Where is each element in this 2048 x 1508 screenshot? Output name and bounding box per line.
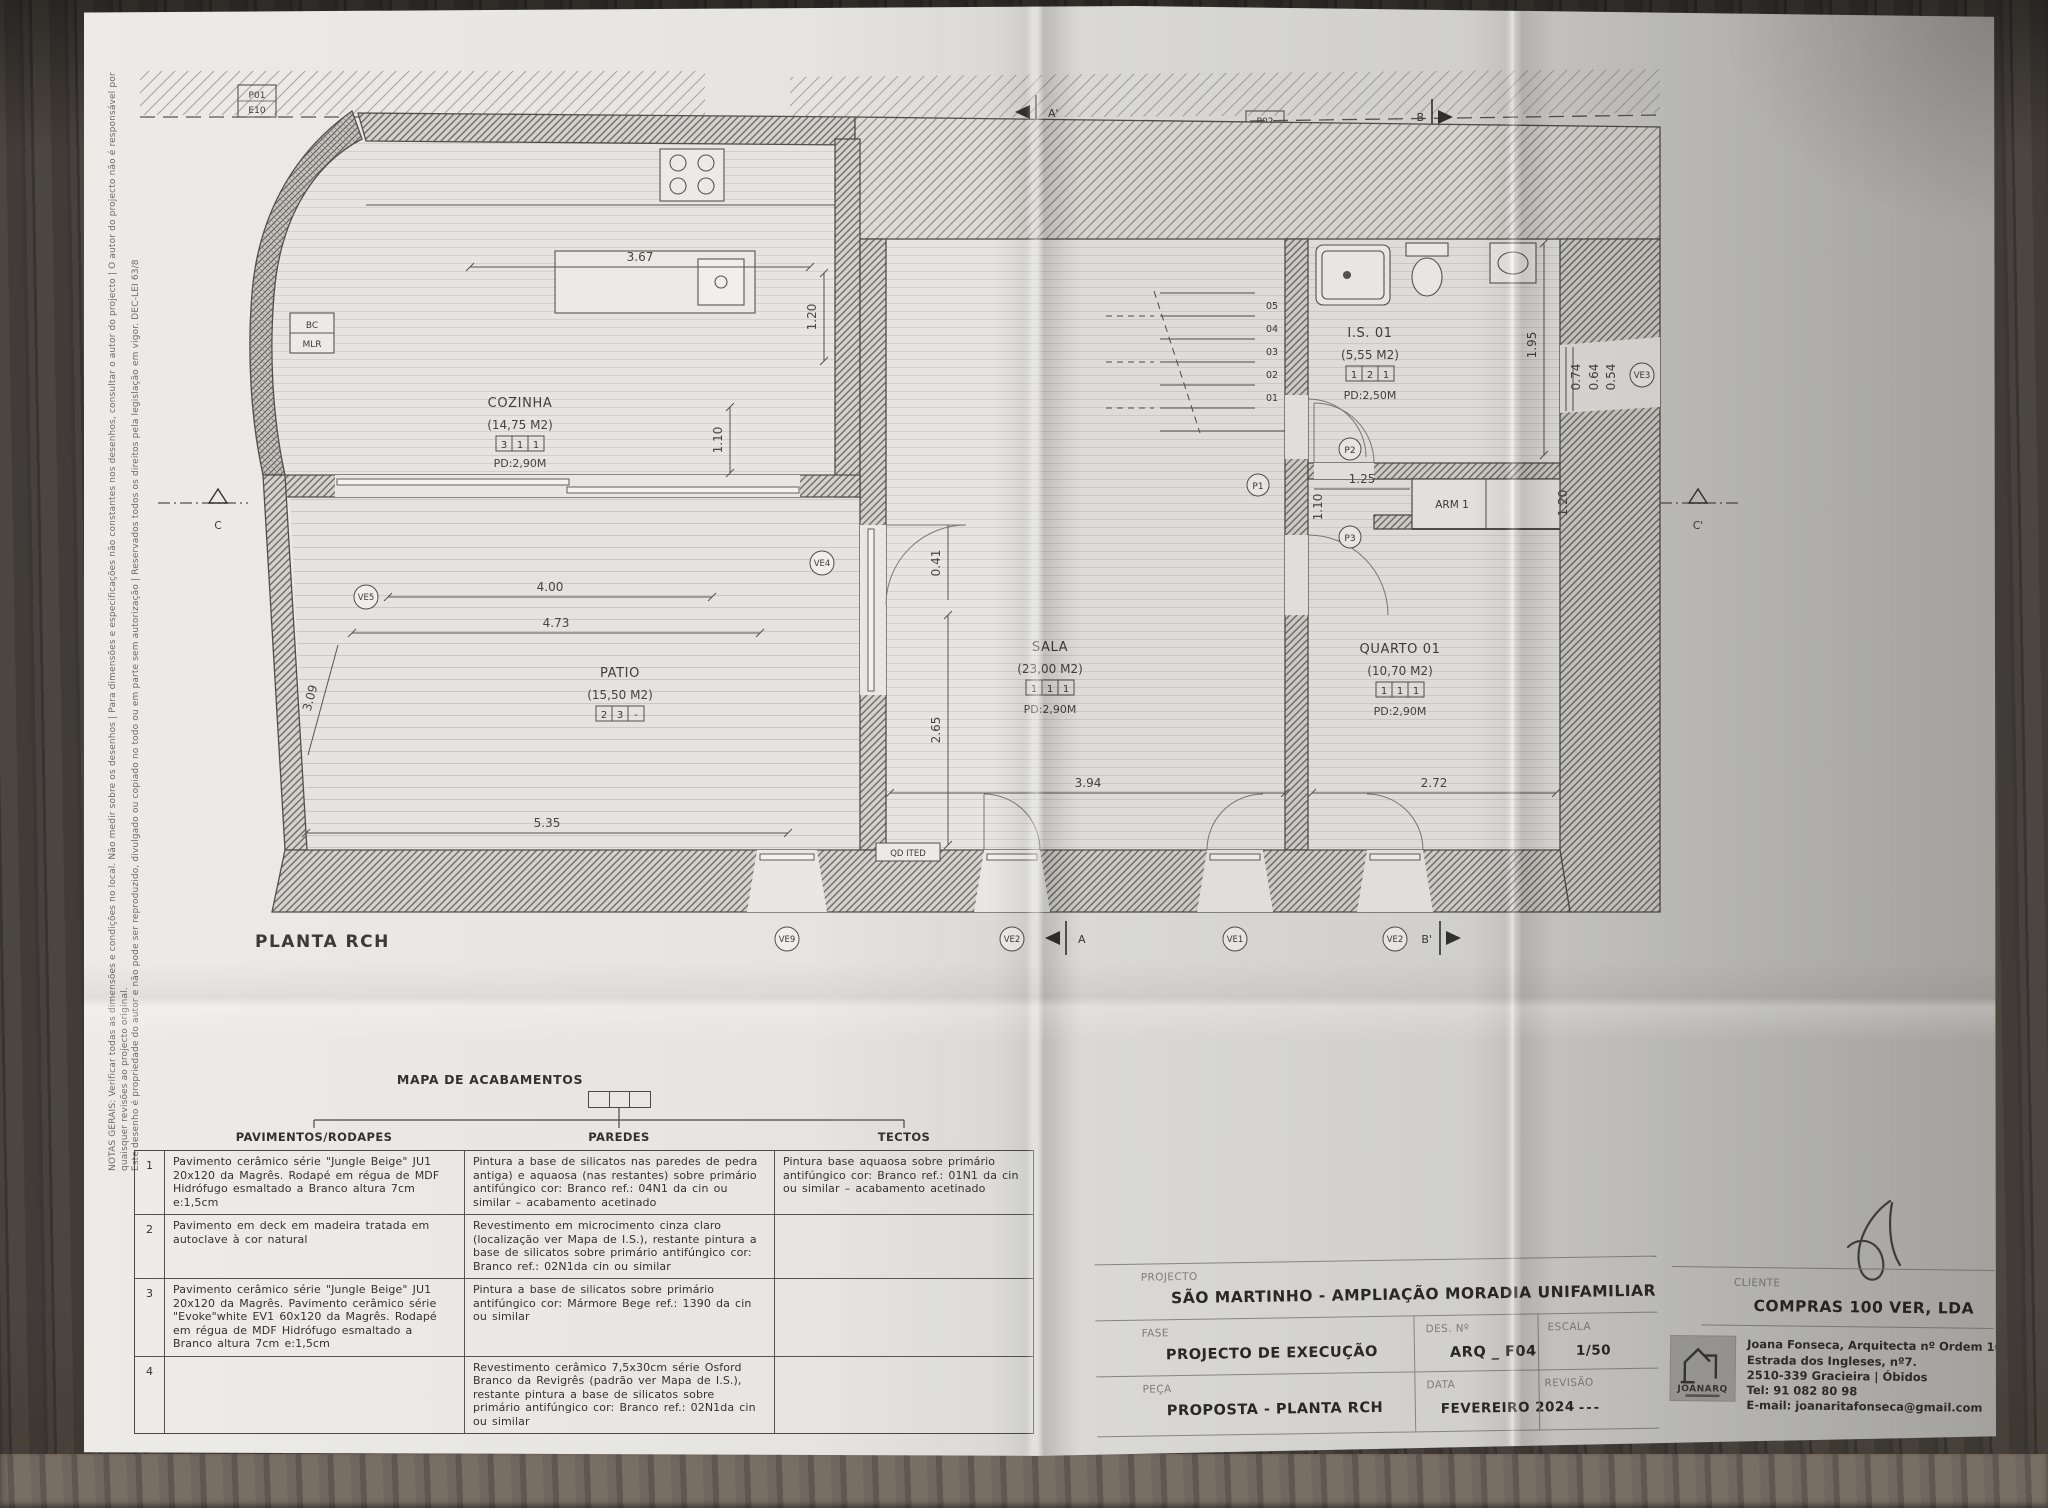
section-marker-c-left: C [158,489,248,532]
svg-text:3: 3 [501,440,507,451]
finishes-row1-paredes: Pintura a base de silicatos nas paredes … [465,1151,775,1215]
svg-text:0.41: 0.41 [929,550,943,577]
svg-text:1.10: 1.10 [711,427,725,454]
svg-text:P01: P01 [249,91,266,101]
finishes-row4-tectos [775,1357,1033,1434]
svg-text:2: 2 [1367,370,1373,381]
des-label: DES. Nº [1426,1323,1470,1336]
svg-text:A: A [1078,933,1086,946]
cliente-label: CLIENTE [1734,1277,1781,1290]
finishes-row3-tectos [775,1279,1033,1357]
svg-text:VE2: VE2 [1387,935,1404,945]
qd-ited-box: QD ITED [876,843,940,861]
section-marker-c-right: C' [1660,489,1740,532]
finishes-row3-pavimentos: Pavimento cerâmico série "Jungle Beige" … [165,1279,465,1357]
svg-text:COZINHA: COZINHA [488,396,553,411]
svg-text:P2: P2 [1344,446,1355,456]
svg-text:VE2: VE2 [1004,935,1021,945]
joanarq-house-icon: JOANARQ [1670,1336,1735,1401]
svg-text:PD:2,90M: PD:2,90M [1024,703,1077,716]
svg-text:P3: P3 [1344,534,1355,544]
svg-text:(14,75 M2): (14,75 M2) [487,418,553,432]
title-block-left: PROJECTO SÃO MARTINHO - AMPLIAÇÃO MORADI… [1094,1250,1659,1459]
escala-label: ESCALA [1548,1321,1592,1334]
svg-text:1.95: 1.95 [1525,332,1539,359]
svg-text:C': C' [1693,520,1703,532]
data-label: DATA [1426,1379,1455,1391]
svg-text:(10,70 M2): (10,70 M2) [1367,664,1433,678]
svg-text:1: 1 [1351,370,1357,381]
svg-text:1: 1 [1031,684,1037,695]
svg-text:01: 01 [1266,393,1278,404]
escala-value: 1/50 [1576,1342,1611,1359]
des-value: ARQ _ F04 [1450,1343,1537,1360]
title-block: PROJECTO SÃO MARTINHO - AMPLIAÇÃO MORADI… [1096,1254,1996,1459]
svg-text:04: 04 [1266,324,1278,335]
revisao-value: --- [1579,1400,1601,1415]
data-value: FEVEREIRO 2024 [1441,1399,1575,1417]
desk-wood-surface [0,1454,2048,1508]
revisao-label: REVISÃO [1544,1377,1593,1390]
finishes-row2-tectos [775,1215,1033,1279]
peca-value: PROPOSTA - PLANTA RCH [1167,1400,1384,1419]
architect-line-1: Joana Fonseca, Arquitecta nº Ordem 16595 [1747,1337,2027,1354]
svg-text:VE9: VE9 [779,935,796,945]
svg-text:0.74: 0.74 [1569,364,1583,391]
svg-text:QUARTO 01: QUARTO 01 [1360,642,1441,657]
svg-text:1: 1 [517,440,523,451]
finishes-table: 1 Pavimento cerâmico série "Jungle Beige… [134,1150,1034,1434]
finishes-col-paredes: PAREDES [588,1130,649,1144]
peca-label: PEÇA [1142,1383,1171,1395]
floor-plan-drawing: P01 E10 P02 F11 A' B [100,55,1960,975]
drawing-sheet: NOTAS GERAIS: Verificar todas as dimensõ… [84,6,1996,1458]
svg-text:0.54: 0.54 [1604,364,1618,391]
title-block-client: CLIENTE COMPRAS 100 VER, LDA JOANARQ Joa… [1670,1252,1997,1461]
joanarq-logo: JOANARQ [1670,1336,1735,1401]
svg-text:(15,50 M2): (15,50 M2) [587,688,653,702]
svg-text:VE5: VE5 [358,593,375,603]
svg-text:VE4: VE4 [814,559,831,569]
architect-line-4: Tel: 91 082 80 98 [1746,1383,1857,1398]
svg-text:E10: E10 [248,106,265,116]
svg-text:BC: BC [306,321,318,331]
svg-text:(5,55 M2): (5,55 M2) [1341,348,1399,362]
architect-line-3: 2510-339 Gracieira | Óbidos [1747,1368,1928,1384]
svg-text:1: 1 [1063,684,1069,695]
section-marker-b-bottom: B' [1421,921,1461,955]
svg-text:-: - [634,710,638,721]
projecto-value: SÃO MARTINHO - AMPLIAÇÃO MORADIA UNIFAMI… [1171,1282,1656,1308]
finishes-row4-paredes: Revestimento cerâmico 7,5x30cm série Osf… [465,1357,775,1434]
svg-text:PATIO: PATIO [600,666,640,681]
finishes-row1-tectos: Pintura base aquaosa sobre primário anti… [775,1151,1033,1215]
svg-text:0.64: 0.64 [1587,364,1601,391]
closet-arm1: ARM 1 [1412,479,1560,529]
svg-text:VE1: VE1 [1227,935,1244,945]
svg-text:1: 1 [1413,686,1419,697]
projecto-label: PROJECTO [1141,1271,1198,1284]
svg-text:5.35: 5.35 [534,816,561,830]
svg-text:1.10: 1.10 [1311,494,1325,521]
svg-text:PD:2,90M: PD:2,90M [1374,705,1427,718]
svg-text:I.S. 01: I.S. 01 [1347,326,1392,341]
svg-text:1: 1 [1047,684,1053,695]
svg-text:B': B' [1421,933,1432,946]
finishes-row2-pavimentos: Pavimento em deck em madeira tratada em … [165,1215,465,1279]
svg-text:02: 02 [1266,370,1278,381]
svg-text:2.72: 2.72 [1421,776,1448,790]
svg-text:1: 1 [533,440,539,451]
svg-text:PD:2,50M: PD:2,50M [1344,389,1397,402]
fase-label: FASE [1142,1327,1169,1339]
svg-text:1.20: 1.20 [1556,490,1570,517]
svg-text:1: 1 [1397,686,1403,697]
finishes-col-pavimentos: PAVIMENTOS/RODAPES [236,1130,393,1144]
svg-text:ARM 1: ARM 1 [1435,499,1469,511]
finishes-row2-paredes: Revestimento em microcimento cinza claro… [465,1215,775,1279]
bc-mlr-box: BC MLR [290,313,334,353]
svg-text:MLR: MLR [302,340,321,350]
svg-text:4.73: 4.73 [543,616,570,630]
finishes-col-tectos: TECTOS [878,1130,930,1144]
svg-text:P1: P1 [1252,482,1263,492]
finishes-row3-paredes: Pintura a base de silicatos sobre primár… [465,1279,775,1357]
svg-text:3.94: 3.94 [1075,776,1102,790]
svg-text:C: C [214,520,221,532]
architect-line-2: Estrada dos Ingleses, nº7. [1747,1353,1917,1369]
svg-text:PD:2,90M: PD:2,90M [494,457,547,470]
svg-text:(23,00 M2): (23,00 M2) [1017,662,1083,676]
svg-text:4.00: 4.00 [537,580,564,594]
finishes-row2-num: 2 [135,1215,165,1279]
svg-text:VE3: VE3 [1634,371,1651,381]
svg-text:3.67: 3.67 [627,250,654,264]
architect-line-5: E-mail: joanaritafonseca@gmail.com [1746,1398,1982,1415]
finishes-row4-pavimentos [165,1357,465,1434]
svg-text:QD ITED: QD ITED [890,849,926,859]
finishes-row1-num: 1 [135,1151,165,1215]
svg-text:3: 3 [617,710,623,721]
section-marker-a-bottom: A [1045,921,1086,955]
svg-text:B: B [1416,111,1424,124]
svg-text:1: 1 [1383,370,1389,381]
svg-text:03: 03 [1266,347,1278,358]
svg-text:2: 2 [601,710,607,721]
finishes-row1-pavimentos: Pavimento cerâmico série "Jungle Beige" … [165,1151,465,1215]
svg-text:2.65: 2.65 [929,717,943,744]
fase-value: PROJECTO DE EXECUÇÃO [1166,1344,1378,1363]
svg-text:JOANARQ: JOANARQ [1676,1384,1727,1395]
plan-title: PLANTA RCH [255,932,390,952]
finishes-row3-num: 3 [135,1279,165,1357]
svg-text:05: 05 [1266,301,1278,312]
svg-text:1.20: 1.20 [805,304,819,331]
cliente-value: COMPRAS 100 VER, LDA [1754,1297,1975,1318]
finishes-row4-num: 4 [135,1357,165,1434]
svg-text:1.25: 1.25 [1349,472,1376,486]
svg-text:1: 1 [1381,686,1387,697]
svg-text:SALA: SALA [1032,640,1068,655]
svg-text:A': A' [1048,107,1059,120]
